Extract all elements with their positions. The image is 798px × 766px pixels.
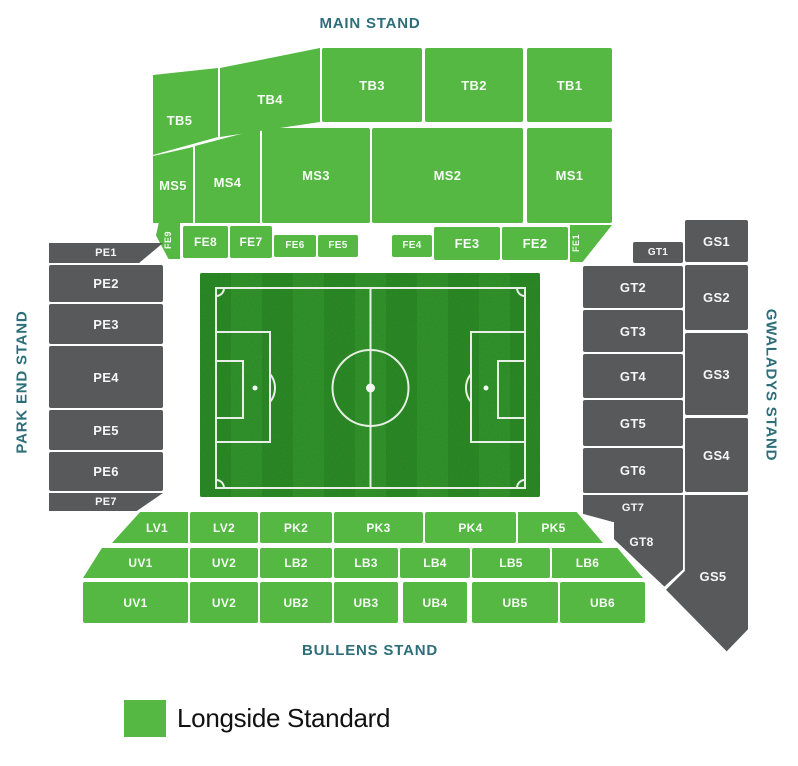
section-gt3: GT3: [583, 310, 683, 352]
section-label: GS4: [703, 449, 730, 462]
section-fe1[interactable]: FE1: [570, 225, 612, 262]
section-label: GT4: [620, 370, 646, 383]
section-label: UB6: [590, 597, 615, 609]
section-label: PK4: [458, 522, 482, 534]
section-gt2: GT2: [583, 266, 683, 308]
section-label: UB3: [354, 597, 379, 609]
section-label: UV1: [123, 597, 147, 609]
section-pe2: PE2: [49, 265, 163, 302]
section-pe3: PE3: [49, 304, 163, 344]
section-lv2[interactable]: LV2: [190, 512, 258, 543]
section-label: GT3: [620, 325, 646, 338]
section-label: FE8: [194, 236, 217, 248]
section-label: UB4: [423, 597, 448, 609]
section-uv1m[interactable]: UV1: [83, 548, 188, 578]
section-label: GT1: [648, 248, 668, 258]
section-gs2: GS2: [685, 265, 748, 330]
section-label: TB3: [359, 79, 384, 92]
section-label: FE4: [402, 241, 421, 251]
pitch-markings: [200, 273, 540, 497]
section-gt1: GT1: [633, 242, 683, 263]
section-label: FE7: [240, 236, 263, 248]
section-lb4[interactable]: LB4: [400, 548, 470, 578]
section-label: UB2: [284, 597, 309, 609]
section-lb2[interactable]: LB2: [260, 548, 332, 578]
section-label: GS3: [703, 368, 730, 381]
section-label: TB4: [257, 93, 282, 106]
section-uv2m[interactable]: UV2: [190, 548, 258, 578]
section-lb3[interactable]: LB3: [334, 548, 398, 578]
section-fe6[interactable]: FE6: [274, 235, 316, 257]
section-tb2[interactable]: TB2: [425, 48, 523, 122]
section-ms2[interactable]: MS2: [372, 128, 523, 223]
stadium-seat-map: MAIN STAND PARK END STAND GWALADYS STAND…: [0, 0, 798, 766]
section-ms5[interactable]: MS5: [153, 147, 193, 223]
section-gt6: GT6: [583, 448, 683, 493]
section-pk4[interactable]: PK4: [425, 512, 516, 543]
section-pe1: PE1: [49, 243, 163, 263]
section-ms1[interactable]: MS1: [527, 128, 612, 223]
section-lv1[interactable]: LV1: [112, 512, 188, 543]
section-label: MS1: [556, 169, 584, 182]
section-pk3[interactable]: PK3: [334, 512, 423, 543]
section-label: TB5: [167, 114, 192, 127]
section-label: GT7: [622, 503, 644, 514]
section-fe3[interactable]: FE3: [434, 227, 500, 260]
section-label: GS5: [700, 570, 727, 583]
legend: Longside Standard: [124, 700, 390, 737]
section-uv2b[interactable]: UV2: [190, 582, 258, 623]
section-ub5[interactable]: UB5: [472, 582, 558, 623]
section-pe4: PE4: [49, 346, 163, 408]
stand-label-bullens-stand: BULLENS STAND: [155, 642, 585, 659]
section-label: LB4: [423, 557, 447, 569]
section-pk2[interactable]: PK2: [260, 512, 332, 543]
section-ub2[interactable]: UB2: [260, 582, 332, 623]
section-fe4[interactable]: FE4: [392, 235, 432, 257]
section-label: FE3: [455, 237, 480, 250]
section-label: UV1: [128, 557, 152, 569]
section-ub6[interactable]: UB6: [560, 582, 645, 623]
section-label: LB6: [576, 557, 600, 569]
section-label: TB1: [557, 79, 582, 92]
section-pe5: PE5: [49, 410, 163, 450]
section-ub4[interactable]: UB4: [403, 582, 467, 623]
section-label: PK3: [366, 522, 390, 534]
section-label: LB5: [499, 557, 523, 569]
section-pk5[interactable]: PK5: [518, 512, 603, 543]
section-label: LV1: [146, 522, 168, 534]
section-fe2[interactable]: FE2: [502, 227, 568, 260]
section-gt4: GT4: [583, 354, 683, 398]
legend-swatch-longside-standard: [124, 700, 166, 737]
section-label: FE9: [164, 231, 173, 249]
section-label: PE5: [93, 424, 118, 437]
section-gs1: GS1: [685, 220, 748, 262]
pitch: [200, 273, 540, 497]
section-label: PE4: [93, 371, 118, 384]
section-label: LB2: [284, 557, 308, 569]
stand-label-main-stand: MAIN STAND: [155, 15, 585, 32]
section-label: LB3: [354, 557, 378, 569]
section-label: PE1: [95, 248, 117, 259]
section-label: PE2: [93, 277, 118, 290]
section-gs4: GS4: [685, 418, 748, 492]
section-pe7: PE7: [49, 493, 163, 511]
section-fe7[interactable]: FE7: [230, 226, 272, 258]
section-label: PE3: [93, 318, 118, 331]
section-label: UV2: [212, 597, 236, 609]
section-fe8[interactable]: FE8: [183, 226, 228, 258]
section-label: PK5: [541, 522, 565, 534]
section-label: GS2: [703, 291, 730, 304]
stand-label-park-end-stand: PARK END STAND: [14, 310, 31, 453]
section-label: MS4: [214, 176, 242, 189]
section-gt7: GT7: [583, 495, 683, 522]
section-pe6: PE6: [49, 452, 163, 491]
section-tb1[interactable]: TB1: [527, 48, 612, 122]
section-label: PE7: [95, 497, 117, 508]
section-gs3: GS3: [685, 333, 748, 415]
section-label: MS2: [434, 169, 462, 182]
section-tb3[interactable]: TB3: [322, 48, 422, 122]
section-label: GS1: [703, 235, 730, 248]
section-label: PE6: [93, 465, 118, 478]
section-lb5[interactable]: LB5: [472, 548, 550, 578]
section-label: TB2: [461, 79, 486, 92]
section-label: MS3: [302, 169, 330, 182]
section-fe5[interactable]: FE5: [318, 235, 358, 257]
section-ms3[interactable]: MS3: [262, 128, 370, 223]
section-gt5: GT5: [583, 400, 683, 446]
section-label: PK2: [284, 522, 308, 534]
section-label: GT6: [620, 464, 646, 477]
section-tb5[interactable]: TB5: [153, 62, 218, 156]
section-label: GT8: [629, 536, 653, 548]
section-ub3[interactable]: UB3: [334, 582, 398, 623]
section-label: FE1: [572, 234, 581, 252]
section-ms4[interactable]: MS4: [195, 129, 260, 223]
section-uv1b[interactable]: UV1: [83, 582, 188, 623]
stand-label-gwaladys-stand: GWALADYS STAND: [763, 309, 780, 462]
section-label: LV2: [213, 522, 235, 534]
section-label: UV2: [212, 557, 236, 569]
section-label: UB5: [503, 597, 528, 609]
section-label: FE2: [523, 237, 548, 250]
section-label: GT5: [620, 417, 646, 430]
section-label: FE5: [328, 241, 347, 251]
section-label: FE6: [285, 241, 304, 251]
section-label: MS5: [159, 179, 187, 192]
section-tb4[interactable]: TB4: [220, 48, 320, 137]
section-fe9[interactable]: FE9: [156, 222, 180, 259]
legend-label-longside-standard: Longside Standard: [177, 703, 390, 734]
section-label: GT2: [620, 281, 646, 294]
section-gt8: GT8: [614, 522, 683, 588]
